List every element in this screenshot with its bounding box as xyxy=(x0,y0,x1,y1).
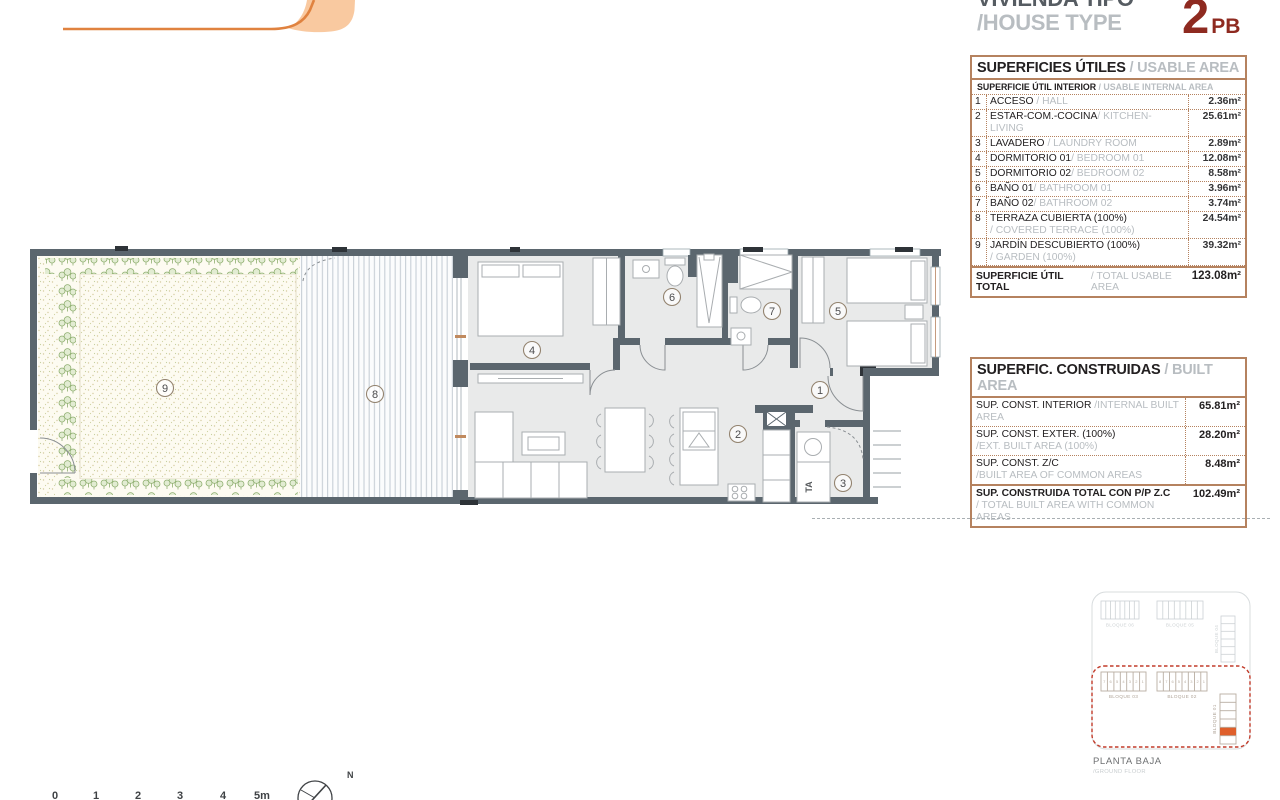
svg-text:6: 6 xyxy=(669,292,675,304)
usable-total-value: 123.08m² xyxy=(1192,270,1241,282)
svg-text:BLOQUE 03: BLOQUE 03 xyxy=(1109,694,1138,700)
svg-text:7: 7 xyxy=(769,306,775,318)
svg-text:7: 7 xyxy=(1165,679,1168,684)
site-caption-en: /GROUND FLOOR xyxy=(1093,769,1146,775)
usable-areas-table: SUPERFICIES ÚTILES / USABLE AREA SUPERFI… xyxy=(970,55,1247,298)
laundry-tag: TA xyxy=(804,481,814,493)
room-label-bath01: 6 xyxy=(664,289,681,306)
logo-swoosh-line xyxy=(63,0,314,29)
room-label-bedroom02: 5 xyxy=(830,303,847,320)
room-label-garden: 9 xyxy=(157,380,174,397)
svg-text:3: 3 xyxy=(177,790,183,800)
hedge-bottom xyxy=(55,479,298,495)
table-row: 8TERRAZA CUBIERTA (100%)/ COVERED TERRAC… xyxy=(972,212,1245,239)
terrace-deck xyxy=(300,256,453,497)
room-label-terrace: 8 xyxy=(367,386,384,403)
highlighted-unit xyxy=(1220,727,1236,735)
room-label-hall: 1 xyxy=(812,382,829,399)
svg-text:BLOQUE 01: BLOQUE 01 xyxy=(1212,704,1218,733)
svg-text:BLOQUE 02: BLOQUE 02 xyxy=(1167,694,1196,700)
brand-logo xyxy=(55,0,355,40)
table-row: SUP. CONST. INTERIOR /INTERNAL BUILT ARE… xyxy=(972,398,1245,427)
svg-text:1: 1 xyxy=(1203,679,1206,684)
svg-text:5: 5 xyxy=(835,306,841,318)
logo-swoosh-fill xyxy=(288,0,355,32)
svg-text:6: 6 xyxy=(1171,679,1174,684)
built-areas-table: SUPERFIC. CONSTRUIDAS / BUILT AREA SUP. … xyxy=(970,357,1247,528)
svg-text:5m: 5m xyxy=(254,790,270,800)
svg-text:6: 6 xyxy=(1109,679,1112,684)
bloque-03: 7654321 BLOQUE 03 xyxy=(1101,672,1146,700)
sheet-title: VIVIENDA TIPO /HOUSE TYPE xyxy=(977,0,1134,35)
usable-table-header: SUPERFICIES ÚTILES / USABLE AREA xyxy=(972,57,1245,80)
svg-text:4: 4 xyxy=(529,345,535,357)
table-row: SUP. CONST. EXTER. (100%)/EXT. BUILT ARE… xyxy=(972,427,1245,456)
svg-text:2: 2 xyxy=(735,429,741,441)
usable-total-row: SUPERFICIE ÚTIL TOTAL / TOTAL USABLE ARE… xyxy=(972,266,1245,296)
compass: N xyxy=(298,770,354,800)
svg-text:7: 7 xyxy=(1103,679,1106,684)
room-label-bath02: 7 xyxy=(764,303,781,320)
scale-bar-and-compass: 0 1 2 3 4 5m N xyxy=(20,765,360,800)
scale-bar: 0 1 2 3 4 5m xyxy=(52,790,270,800)
site-caption-es: PLANTA BAJA xyxy=(1093,756,1162,767)
svg-text:3: 3 xyxy=(1129,679,1132,684)
built-total-value: 102.49m² xyxy=(1185,486,1245,526)
svg-text:1: 1 xyxy=(1142,679,1145,684)
room-label-bedroom01: 4 xyxy=(524,342,541,359)
svg-text:3: 3 xyxy=(1190,679,1193,684)
bloque-02: 87654321 BLOQUE 02 xyxy=(1157,672,1207,700)
svg-text:2: 2 xyxy=(135,790,141,800)
table-row: 9JARDÍN DESCUBIERTO (100%)/ GARDEN (100%… xyxy=(972,239,1245,266)
table-row: 1ACCESO / HALL2.36m² xyxy=(972,95,1245,110)
dining-furniture xyxy=(597,408,654,472)
floor-plan: TA 9 8 4 6 7 5 1 2 3 xyxy=(15,235,945,525)
svg-text:1: 1 xyxy=(817,385,823,397)
table-row: 7BAÑO 02/ BATHROOM 023.74m² xyxy=(972,197,1245,212)
svg-text:0: 0 xyxy=(52,790,58,800)
north-label: N xyxy=(347,770,354,780)
svg-text:1: 1 xyxy=(93,790,99,800)
svg-text:2: 2 xyxy=(1135,679,1138,684)
svg-text:8: 8 xyxy=(372,389,378,401)
site-key-plan: BLOQUE 06 BLOQUE 05 BLOQUE 04 7654321 BL… xyxy=(1085,588,1265,783)
built-total-row: SUP. CONSTRUIDA TOTAL CON P/P Z.C/ TOTAL… xyxy=(972,484,1245,526)
svg-text:9: 9 xyxy=(162,383,168,395)
room-label-kitchen-living: 2 xyxy=(730,426,747,443)
entrance-porch xyxy=(870,376,932,497)
svg-text:2: 2 xyxy=(1196,679,1199,684)
house-type-number: 2 xyxy=(1182,0,1209,41)
svg-text:BLOQUE 04: BLOQUE 04 xyxy=(1214,625,1219,653)
bedroom01-furniture xyxy=(478,258,620,336)
built-table-header: SUPERFIC. CONSTRUIDAS / BUILT AREA xyxy=(972,359,1245,398)
svg-text:3: 3 xyxy=(840,478,846,490)
svg-text:BLOQUE 05: BLOQUE 05 xyxy=(1166,623,1194,628)
svg-text:5: 5 xyxy=(1178,679,1181,684)
svg-text:5: 5 xyxy=(1116,679,1119,684)
table-row: 2ESTAR-COM.-COCINA/ KITCHEN-LIVING25.61m… xyxy=(972,110,1245,137)
floorplan-sheet: { "header": { "title_es": "VIVIENDA TIPO… xyxy=(0,0,1280,800)
usable-table-subheader: SUPERFICIE ÚTIL INTERIOR / USABLE INTERN… xyxy=(972,80,1245,95)
svg-text:8: 8 xyxy=(1159,679,1162,684)
svg-text:BLOQUE 06: BLOQUE 06 xyxy=(1106,623,1134,628)
house-type-suffix: PB xyxy=(1211,15,1240,39)
table-row: 5DORMITORIO 02/ BEDROOM 028.58m² xyxy=(972,167,1245,182)
svg-text:4: 4 xyxy=(1184,679,1187,684)
table-row: 6BAÑO 01/ BATHROOM 013.96m² xyxy=(972,182,1245,197)
table-row: 4DORMITORIO 01/ BEDROOM 0112.08m² xyxy=(972,152,1245,167)
bloque-05: BLOQUE 05 xyxy=(1157,601,1203,628)
svg-text:4: 4 xyxy=(220,790,227,800)
house-type-badge: 2 PB xyxy=(1182,0,1240,41)
plot-boundary-dashed-line xyxy=(812,518,1270,519)
title-en: /HOUSE TYPE xyxy=(977,11,1134,35)
svg-text:4: 4 xyxy=(1122,679,1125,684)
bloque-04: BLOQUE 04 xyxy=(1214,616,1235,662)
table-row: SUP. CONST. Z/C/BUILT AREA OF COMMON ARE… xyxy=(972,456,1245,484)
laundry-fixtures: TA xyxy=(797,432,830,502)
hedge-left xyxy=(58,274,76,478)
hedge-top xyxy=(45,258,298,274)
bloque-06: BLOQUE 06 xyxy=(1101,601,1139,628)
room-label-laundry: 3 xyxy=(835,475,852,492)
bloque-01: BLOQUE 01 xyxy=(1212,694,1236,744)
table-row: 3LAVADERO / LAUNDRY ROOM2.89m² xyxy=(972,137,1245,152)
garden-area xyxy=(38,256,300,497)
